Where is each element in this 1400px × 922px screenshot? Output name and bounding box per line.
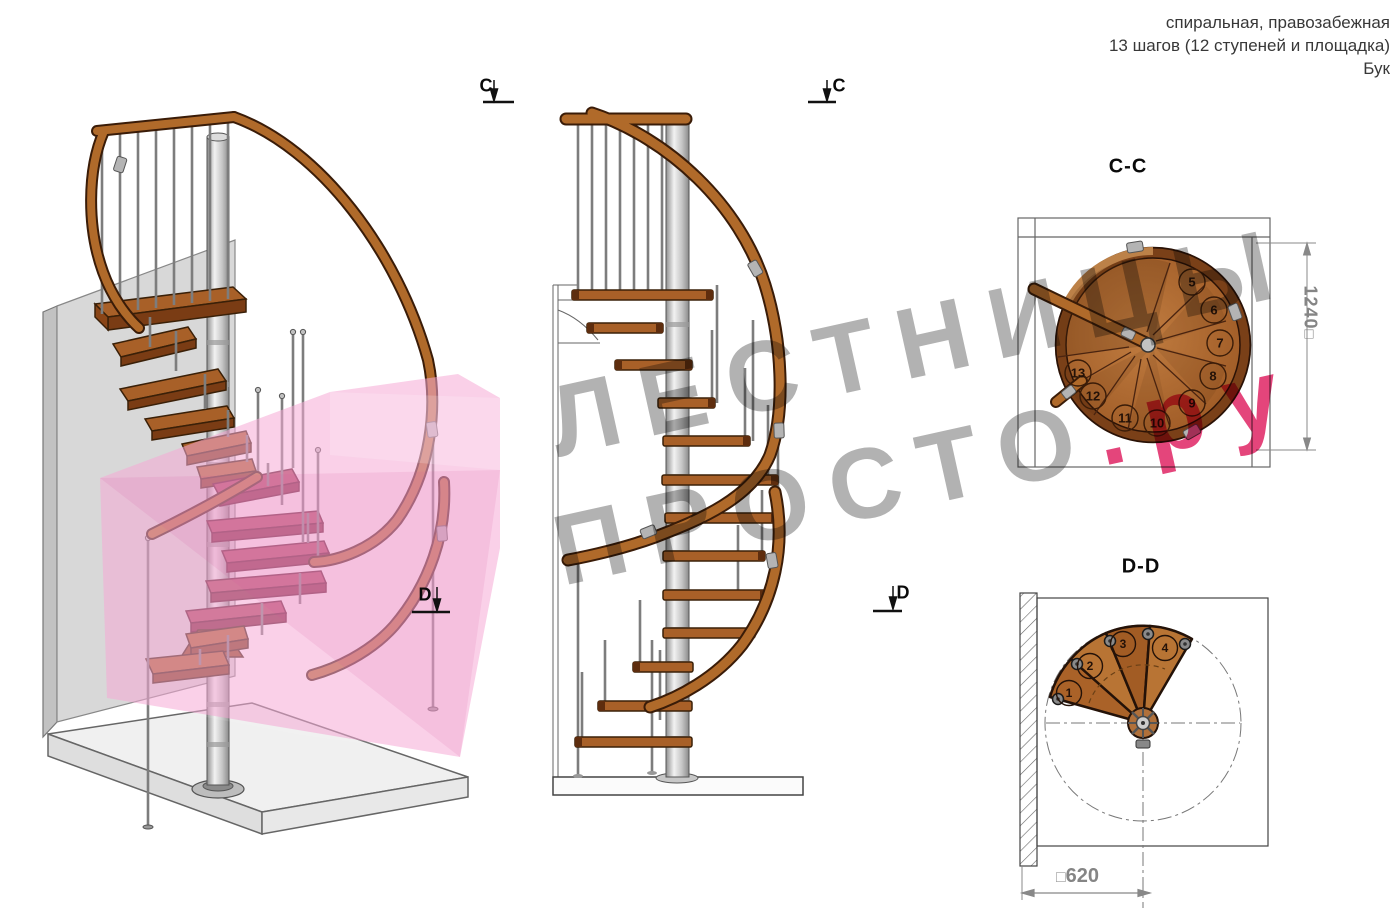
cc-step-number: 9 — [1188, 396, 1195, 411]
dd-dimension-text: □620 — [1056, 865, 1099, 888]
title-line-type: спиральная, правозабежная — [1109, 12, 1390, 35]
cc-step-number: 8 — [1209, 369, 1216, 384]
dd-hub — [1128, 708, 1158, 748]
elevation-view — [553, 113, 803, 795]
section-marker-d-right: D — [897, 583, 910, 604]
dd-wall-hatch — [1020, 593, 1037, 866]
wall-outline — [553, 285, 600, 777]
cc-plan-view — [1018, 218, 1316, 467]
cc-step-number: 5 — [1188, 275, 1195, 290]
staircase-drawing-canvas — [0, 0, 1400, 922]
dd-step-number: 3 — [1120, 637, 1127, 651]
dd-step-number: 2 — [1087, 659, 1094, 673]
section-marker-c-right: C — [833, 76, 846, 97]
iso-view — [43, 117, 500, 834]
cc-step-number: 12 — [1086, 389, 1100, 404]
section-label-dd: D-D — [1122, 556, 1161, 579]
dd-step-number: 1 — [1066, 686, 1073, 700]
cc-step-number: 6 — [1210, 303, 1217, 318]
drawing-title: спиральная, правозабежная 13 шагов (12 с… — [1109, 12, 1390, 80]
dd-step-number: 4 — [1162, 641, 1169, 655]
section-label-cc: C-C — [1109, 156, 1148, 179]
cc-dimension-text: 1240□ — [1300, 277, 1321, 349]
cc-step-number: 10 — [1150, 416, 1164, 431]
dd-plan-view — [1020, 593, 1268, 908]
section-marker-d-left: D — [419, 585, 432, 606]
section-marker-c-left: C — [480, 76, 493, 97]
title-line-steps: 13 шагов (12 ступеней и площадка) — [1109, 35, 1390, 58]
cc-step-number: 7 — [1216, 336, 1223, 351]
drawing-sheet: спиральная, правозабежная 13 шагов (12 с… — [0, 0, 1400, 922]
cc-step-number: 13 — [1071, 366, 1085, 381]
cc-step-number: 11 — [1118, 411, 1132, 426]
title-line-material: Бук — [1109, 58, 1390, 81]
